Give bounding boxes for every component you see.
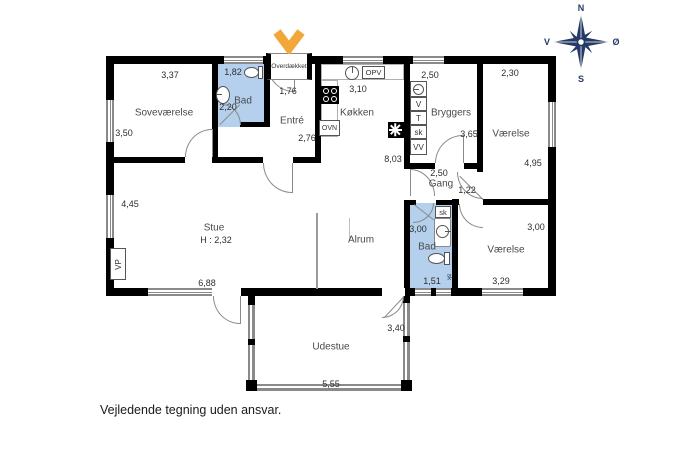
wall [523,288,556,296]
dim: 1,51 [423,276,441,286]
wall [106,56,224,64]
dim: 2,20 [219,102,237,112]
door-leaf [410,169,411,196]
window [248,345,255,380]
opv-box: OPV [362,66,385,79]
dim: 8,03 [384,154,402,164]
wall [106,288,148,296]
entrance-marker-icon [272,27,306,54]
window [415,288,431,296]
room-name-bad-top: Bad [234,96,252,107]
wall [452,200,458,288]
window [548,102,556,147]
dim: 3,37 [161,70,179,80]
room-name-gang: Gang [429,179,453,190]
dryer-box: T [410,111,427,125]
post [401,380,412,391]
room-name-udestue: Udestue [312,342,349,353]
wall [312,56,343,64]
room-name-vaerelse-ne: Værelse [492,129,529,140]
dim: 3,00 [527,222,545,232]
dim: 2,50 [430,168,448,178]
window [148,288,212,296]
toilet-tank [258,66,263,79]
dim: 3,00 [409,224,427,234]
toilet-tank [444,252,450,265]
compass-east-label: Ø [612,37,619,47]
dim-entre-top: 1,76 [279,86,297,96]
porch-label: Overdækket [271,63,306,70]
wall [106,56,114,100]
closet-label: sk [415,128,423,137]
dim: 3,10 [349,84,367,94]
room-name-koekken: Køkken [340,108,374,119]
dim: 4,95 [524,158,542,168]
washer-box: V [410,97,427,111]
room-name-stue: Stue [204,223,225,234]
wall [477,64,483,172]
compass-west-label: V [544,37,550,47]
dim: 6,88 [198,278,216,288]
wall [404,200,410,288]
dishwasher-tick [352,66,353,73]
wall [106,157,185,163]
door-arc [185,129,212,157]
oven-label: OVN [322,125,337,132]
wall [444,56,556,64]
dim: 1,82 [224,67,242,77]
toilet-icon [244,67,259,78]
wall [383,56,413,64]
dim: 3,29 [492,276,510,286]
toilet-icon [428,253,445,264]
door-leaf [292,163,293,193]
door-leaf [463,135,464,163]
room-name-bryggers: Bryggers [431,108,471,119]
porch-box: Overdækket [266,53,312,80]
ceiling-height-note: H : 2,32 [200,235,232,245]
dim: 2,30 [501,68,519,78]
water-heater-box: VV [410,139,427,155]
stove-icon [321,86,339,104]
window [224,56,263,64]
room-name-alrum: Alrum [348,235,374,246]
room-name-vaerelse-se: Værelse [487,245,524,256]
vp-box: VP [110,248,126,280]
partial-wall [316,213,318,289]
dim: 2,76 [298,133,316,143]
compass-north-label: N [578,3,585,13]
wall [483,199,548,205]
sink-tick [216,94,222,95]
door-arc [459,204,483,228]
window [436,288,451,296]
closet-box: sk [435,206,451,218]
post [246,380,257,391]
door-arc [435,135,463,163]
compass-south-label: S [578,74,584,84]
wall [548,147,556,296]
room-name-bad-mid: Bad [418,242,436,253]
room-name-entre: Entré [280,116,304,127]
closet-box: sk [410,125,427,139]
window [403,342,410,380]
room-name-sovevaerelse: Soveværelse [135,108,193,119]
door-leaf [240,296,241,324]
door-leaf [212,129,213,157]
window [106,100,114,142]
wall [240,122,264,127]
oven-box: OVN [319,120,340,136]
opv-label: OPV [366,68,382,77]
dryer-label: T [416,114,421,123]
floor-plan: Overdækket 1,76 OPV OVN V T sk VV [0,0,687,457]
window [106,195,114,238]
dim: 3,65 [460,129,478,139]
disclaimer-text: Vejledende tegning uden ansvar. [100,403,281,417]
washer-label: V [416,100,421,109]
wall [241,288,382,296]
door-arc [263,163,292,193]
small-closet-label: sk [446,274,453,281]
wall [451,288,482,296]
wall [405,288,415,296]
vp-label: VP [113,259,122,270]
wall [106,142,114,195]
dim: 5,55 [322,379,340,389]
closet-label: sk [439,208,447,217]
compass-rose-icon: N S V Ø [541,0,623,84]
extractor-icon [388,122,404,138]
dim: 3,40 [387,323,405,333]
dim: 1,22 [458,185,476,195]
door-arc [213,296,240,324]
window [413,56,444,64]
window [343,56,383,64]
window [482,288,523,296]
post [248,296,255,305]
utility-sink-tick [413,89,419,90]
basin-tick [445,231,451,232]
dim: 2,50 [421,70,439,80]
water-heater-label: VV [413,143,424,152]
wall [213,157,263,163]
dim: 3,50 [115,128,133,138]
window [248,305,255,339]
dim: 4,45 [121,199,139,209]
